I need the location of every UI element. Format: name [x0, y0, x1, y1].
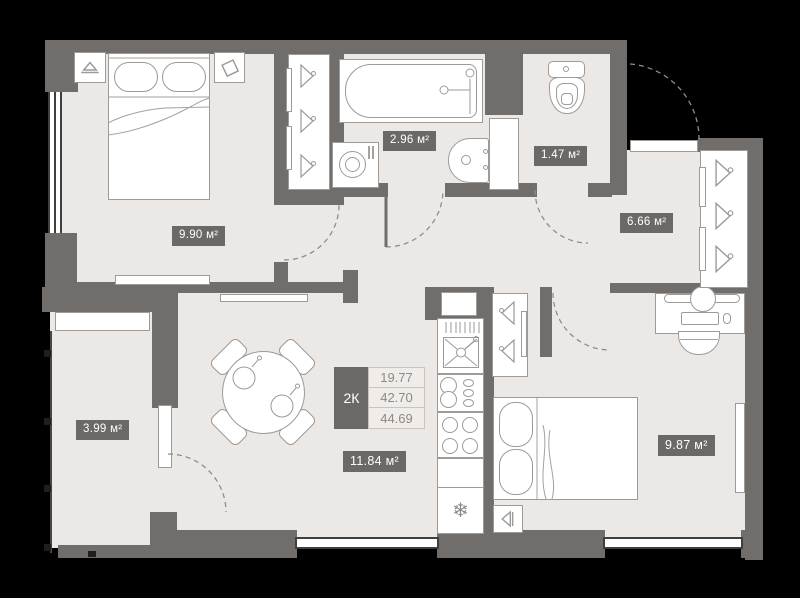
wall-left-mid: [45, 233, 77, 292]
wall-top: [45, 40, 627, 54]
washer-panel: [368, 146, 370, 159]
sink-tap: [483, 149, 488, 154]
wall-right-upper: [747, 150, 763, 290]
room-area-badge-kitchen-living: 11.84 м²: [343, 451, 406, 472]
bathtub-basin: [345, 64, 477, 118]
hanger-icon: [296, 153, 318, 179]
pillow: [114, 62, 158, 92]
washer-panel: [372, 146, 374, 159]
dining-table: [222, 351, 305, 434]
toilet-seat: [561, 93, 573, 105]
wall-bedroom2-stub: [540, 287, 552, 357]
burner: [462, 417, 478, 433]
closet-shelf: [521, 311, 527, 357]
glazing-post: [44, 350, 51, 357]
hanger-icon: [296, 108, 318, 134]
toilet-button: [563, 66, 569, 72]
kitchen-sink: [443, 337, 479, 368]
floor-plan: ❄: [0, 0, 800, 598]
wall-hall-stub: [343, 270, 358, 303]
kitchen-duct: [441, 292, 477, 316]
window-bottom-right: [603, 537, 743, 549]
wall-bottom-right: [741, 530, 763, 558]
dish-icon: [463, 389, 474, 397]
sink-tap: [483, 165, 488, 170]
dish-icon: [463, 379, 474, 387]
closet-shelf: [699, 227, 706, 271]
entry-threshold: [630, 140, 698, 152]
pillow: [499, 402, 533, 447]
burner: [442, 417, 458, 433]
wall-balcony-right-upper: [152, 290, 178, 408]
chair-detail: [680, 339, 718, 340]
wall-right-lower: [745, 283, 763, 560]
balcony-glazing-west: [50, 331, 52, 553]
room-area-badge-hallway: 6.66 м²: [620, 213, 673, 233]
duct-shaft: [489, 118, 519, 190]
washer-drum-inner: [345, 157, 360, 172]
apartment-type-cell: 2К: [334, 367, 369, 429]
kitchen-counter: [437, 458, 484, 488]
sink-drain: [461, 155, 471, 165]
pillow: [162, 62, 206, 92]
book-icon: [215, 53, 244, 82]
burner: [442, 438, 458, 454]
wall-wc-south-right: [588, 183, 612, 197]
room-area-badge-bedroom-1: 9.90 м²: [172, 226, 225, 246]
pillow: [499, 449, 533, 495]
nightstand: [74, 52, 106, 83]
entry-door-arc: [630, 64, 699, 139]
hanger-icon: [497, 338, 519, 364]
burner: [462, 438, 478, 454]
balcony-glazing-north: [55, 312, 150, 331]
wall-wc-east: [610, 54, 627, 195]
room-area-badge-bedroom-2: 9.87 м²: [658, 435, 715, 456]
glazing-post: [88, 551, 96, 557]
lamp-icon: [494, 506, 522, 532]
wall-bottom-a: [168, 530, 297, 558]
hanger-icon: [497, 300, 519, 326]
closet-shelf: [286, 126, 292, 170]
room-area-badge-wc: 1.47 м²: [534, 146, 587, 166]
fridge-snowflake-icon: ❄: [437, 487, 484, 534]
plate: [440, 391, 457, 408]
glazing-post: [44, 485, 51, 492]
glazing-post: [44, 418, 51, 425]
window-right-wall: [735, 403, 745, 493]
wall-bedroom1-east-lower: [274, 262, 288, 283]
summary-value-full: 44.69: [368, 407, 425, 429]
hanger-icon: [710, 244, 736, 274]
nightstand: [214, 52, 245, 83]
desk-chair-seat: [690, 286, 716, 312]
closet-shelf: [286, 68, 292, 112]
hanger-icon: [296, 63, 318, 89]
wall-bottom-left-strip: [58, 545, 177, 558]
hanger-icon: [710, 201, 736, 231]
room-area-badge-balcony: 3.99 м²: [76, 420, 129, 440]
window-bottom-left: [295, 537, 439, 549]
glazing-post: [44, 544, 51, 551]
dish-icon: [463, 399, 474, 407]
summary-value-living: 19.77: [368, 367, 425, 388]
nightstand: [493, 505, 523, 533]
mouse: [723, 313, 731, 324]
wall-duct-top: [485, 54, 523, 115]
tv-console: [220, 294, 308, 302]
lamp-icon: [75, 53, 105, 82]
summary-value-total: 42.70: [368, 387, 425, 408]
dresser: [115, 275, 210, 285]
balcony-door-leaf: [158, 405, 172, 468]
hanger-icon: [710, 158, 736, 188]
window-left-wall-mullion: [54, 92, 56, 233]
keyboard: [681, 312, 719, 325]
wall-bottom-pier: [437, 530, 605, 558]
closet-shelf: [699, 167, 706, 207]
room-area-badge-bathroom: 2.96 м²: [383, 131, 436, 151]
